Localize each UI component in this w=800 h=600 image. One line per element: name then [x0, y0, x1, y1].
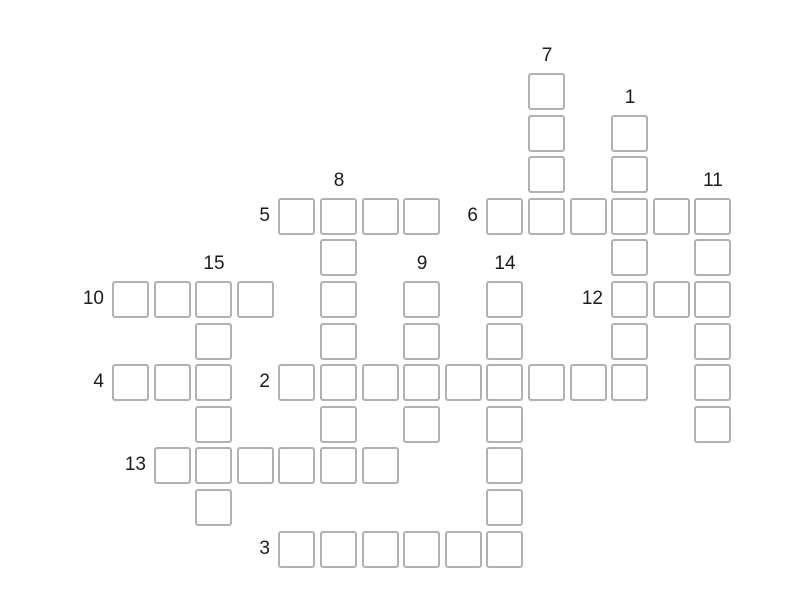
crossword-cell[interactable]: [320, 323, 357, 360]
crossword-cell[interactable]: [486, 281, 523, 318]
clue-number-label: 6: [428, 197, 478, 234]
crossword-cell[interactable]: [112, 364, 149, 401]
crossword-cell[interactable]: [445, 531, 482, 568]
crossword-cell[interactable]: [611, 115, 648, 152]
crossword-cell[interactable]: [486, 447, 523, 484]
crossword-cell[interactable]: [278, 447, 315, 484]
crossword-cell[interactable]: [320, 364, 357, 401]
crossword-cell[interactable]: [528, 156, 565, 193]
clue-number-label: 15: [184, 254, 244, 274]
crossword-cell[interactable]: [694, 364, 731, 401]
crossword-cell[interactable]: [195, 281, 232, 318]
crossword-cell[interactable]: [694, 323, 731, 360]
clue-number-label: 9: [392, 254, 452, 274]
crossword-cell[interactable]: [278, 531, 315, 568]
crossword-cell[interactable]: [486, 323, 523, 360]
crossword-cell[interactable]: [486, 406, 523, 443]
crossword-cell[interactable]: [611, 239, 648, 276]
clue-number-label: 11: [683, 171, 743, 191]
clue-number-label: 4: [54, 363, 104, 400]
crossword-cell[interactable]: [237, 281, 274, 318]
crossword-grid: 123456789101112131415: [0, 0, 800, 600]
crossword-cell[interactable]: [694, 406, 731, 443]
clue-number-label: 1: [600, 88, 660, 108]
crossword-cell[interactable]: [362, 531, 399, 568]
crossword-cell[interactable]: [611, 156, 648, 193]
crossword-cell[interactable]: [694, 239, 731, 276]
crossword-cell[interactable]: [362, 447, 399, 484]
crossword-cell[interactable]: [320, 281, 357, 318]
crossword-cell[interactable]: [112, 281, 149, 318]
crossword-cell[interactable]: [195, 447, 232, 484]
crossword-cell[interactable]: [403, 406, 440, 443]
crossword-cell[interactable]: [528, 364, 565, 401]
crossword-cell[interactable]: [528, 198, 565, 235]
crossword-cell[interactable]: [694, 198, 731, 235]
crossword-cell[interactable]: [445, 364, 482, 401]
crossword-cell[interactable]: [653, 281, 690, 318]
crossword-cell[interactable]: [320, 198, 357, 235]
clue-number-label: 8: [309, 171, 369, 191]
crossword-cell[interactable]: [195, 323, 232, 360]
crossword-cell[interactable]: [320, 406, 357, 443]
crossword-canvas: 123456789101112131415: [0, 0, 800, 600]
crossword-cell[interactable]: [320, 447, 357, 484]
crossword-cell[interactable]: [528, 73, 565, 110]
crossword-cell[interactable]: [611, 364, 648, 401]
crossword-cell[interactable]: [195, 406, 232, 443]
clue-number-label: 13: [96, 446, 146, 483]
crossword-cell[interactable]: [195, 489, 232, 526]
crossword-cell[interactable]: [528, 115, 565, 152]
crossword-cell[interactable]: [237, 447, 274, 484]
crossword-cell[interactable]: [611, 323, 648, 360]
crossword-cell[interactable]: [486, 364, 523, 401]
crossword-cell[interactable]: [278, 198, 315, 235]
crossword-cell[interactable]: [403, 281, 440, 318]
crossword-cell[interactable]: [611, 281, 648, 318]
crossword-cell[interactable]: [403, 531, 440, 568]
clue-number-label: 3: [220, 530, 270, 567]
crossword-cell[interactable]: [320, 531, 357, 568]
crossword-cell[interactable]: [486, 531, 523, 568]
crossword-cell[interactable]: [653, 198, 690, 235]
crossword-cell[interactable]: [403, 364, 440, 401]
crossword-cell[interactable]: [362, 198, 399, 235]
clue-number-label: 12: [553, 280, 603, 317]
crossword-cell[interactable]: [154, 364, 191, 401]
clue-number-label: 10: [54, 280, 104, 317]
crossword-cell[interactable]: [320, 239, 357, 276]
crossword-cell[interactable]: [570, 364, 607, 401]
clue-number-label: 14: [475, 254, 535, 274]
crossword-cell[interactable]: [486, 489, 523, 526]
crossword-cell[interactable]: [403, 323, 440, 360]
crossword-cell[interactable]: [486, 198, 523, 235]
crossword-cell[interactable]: [195, 364, 232, 401]
crossword-cell[interactable]: [611, 198, 648, 235]
crossword-cell[interactable]: [362, 364, 399, 401]
crossword-cell[interactable]: [278, 364, 315, 401]
crossword-cell[interactable]: [694, 281, 731, 318]
crossword-cell[interactable]: [154, 281, 191, 318]
clue-number-label: 7: [517, 46, 577, 66]
clue-number-label: 5: [220, 197, 270, 234]
crossword-cell[interactable]: [570, 198, 607, 235]
crossword-cell[interactable]: [154, 447, 191, 484]
